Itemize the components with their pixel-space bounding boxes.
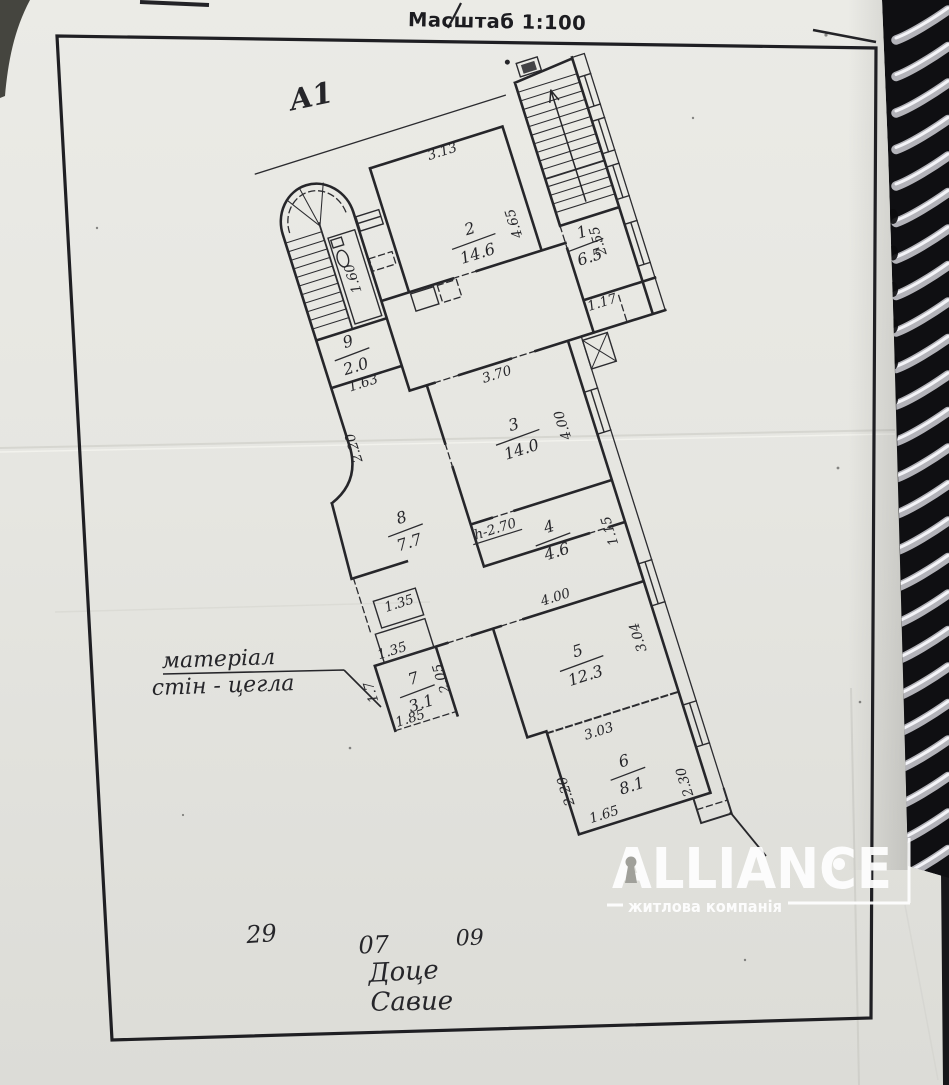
- signature-line2: Савие: [370, 986, 453, 1017]
- peephole-dot-icon: [833, 858, 845, 870]
- material-note-line2: стін - цегла: [151, 671, 295, 701]
- scale-label: Масштаб 1:100: [408, 8, 587, 35]
- photo-of-floor-plan: Масштаб 1:100 А1: [0, 0, 949, 1085]
- scene: Масштаб 1:100 А1: [0, 0, 949, 1085]
- date-year: 09: [455, 926, 484, 952]
- paper-sheet: [0, 0, 943, 1085]
- signature-line1: Доце: [367, 955, 440, 989]
- date-month: 07: [358, 930, 390, 959]
- logo-subtitle: житлова компанія: [628, 897, 782, 916]
- date-day: 29: [244, 919, 277, 949]
- alliance-logo: ALLIANCE житлова компанія: [607, 837, 910, 916]
- material-note-line1: матеріал: [161, 645, 275, 674]
- logo-brand: ALLIANCE: [612, 837, 892, 902]
